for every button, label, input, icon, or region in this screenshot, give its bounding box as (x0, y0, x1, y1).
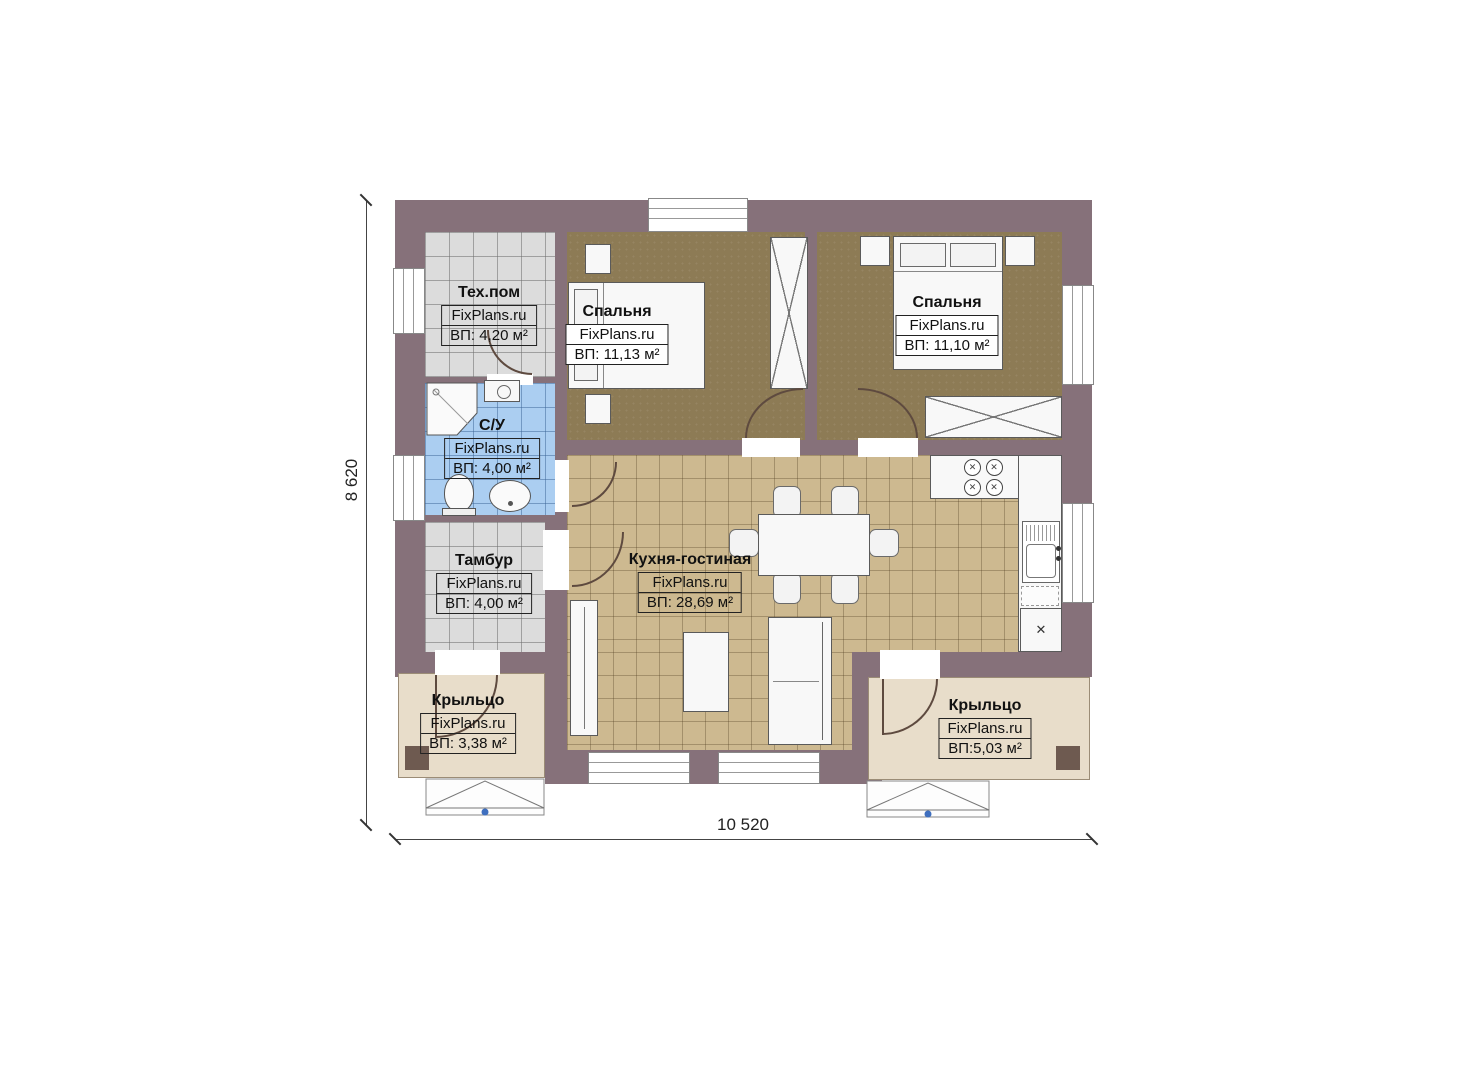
room-label-box: FixPlans.ru ВП: 4,00 м² (444, 438, 540, 479)
room-label-porch-left: Крыльцо FixPlans.ru ВП: 3,38 м² (420, 692, 516, 754)
stove-burner-icon (986, 459, 1003, 476)
porch-column (1056, 746, 1080, 770)
cabinet-x-marker (1020, 608, 1062, 652)
washer-door (497, 385, 511, 399)
wardrobe (770, 237, 808, 389)
window-bottom-2 (718, 752, 820, 784)
faucet-dot (1056, 556, 1061, 561)
tv-stand (570, 600, 598, 736)
sink-drain (508, 501, 513, 506)
sink-basin (1026, 544, 1056, 578)
pillow (950, 243, 996, 267)
nightstand (585, 244, 611, 274)
room-label-bedroom2: Спальня FixPlans.ru ВП: 11,10 м² (895, 294, 998, 356)
window-right-2 (1062, 503, 1094, 603)
coffee-table (683, 632, 729, 712)
room-name: Крыльцо (420, 692, 516, 710)
window-top-1 (648, 198, 748, 232)
room-label-box: FixPlans.ru ВП: 3,38 м² (420, 713, 516, 754)
dimension-height-label: 8 620 (342, 444, 362, 516)
pillow (900, 243, 946, 267)
room-name: Крыльцо (938, 697, 1031, 715)
stove-burner-icon (964, 479, 981, 496)
brand-text: FixPlans.ru (421, 714, 515, 734)
area-text: ВП: 4,00 м² (437, 594, 531, 613)
door-leaf-porch-right (882, 679, 884, 735)
area-text: ВП: 28,69 м² (639, 593, 741, 612)
porch-steps-right (866, 780, 990, 818)
area-text: ВП: 3,38 м² (421, 734, 515, 753)
room-label-bedroom1: Спальня FixPlans.ru ВП: 11,13 м² (565, 303, 668, 365)
room-name: С/У (444, 417, 540, 435)
window-left-2 (393, 455, 425, 521)
area-text: ВП: 11,10 м² (896, 336, 997, 355)
kitchen-sink-icon (1022, 521, 1060, 583)
room-label-tech: Тех.пом FixPlans.ru ВП: 4,20 м² (441, 284, 537, 346)
dimension-line-horizontal (395, 839, 1092, 840)
brand-text: FixPlans.ru (896, 316, 997, 336)
bed-fold-line (894, 271, 1002, 272)
toilet-icon (444, 474, 474, 512)
sofa-cushion-split (773, 681, 819, 682)
room-label-porch-right: Крыльцо FixPlans.ru ВП:5,03 м² (938, 697, 1031, 759)
toilet-tank (442, 508, 476, 516)
chair (773, 572, 801, 604)
tv-line (584, 607, 585, 729)
window-right-1 (1062, 285, 1094, 385)
room-label-bathroom: С/У FixPlans.ru ВП: 4,00 м² (444, 417, 540, 479)
room-name: Тамбур (436, 552, 532, 570)
dimension-line-vertical (366, 200, 367, 825)
dimension-width-label: 10 520 (698, 815, 788, 835)
chair (869, 529, 899, 557)
nightstand (1005, 236, 1035, 266)
window-left-1 (393, 268, 425, 334)
room-label-vestibule: Тамбур FixPlans.ru ВП: 4,00 м² (436, 552, 532, 614)
doorway-porch-left (435, 650, 500, 675)
washing-machine-icon (484, 380, 520, 402)
dining-table (758, 514, 870, 576)
area-text: ВП:5,03 м² (939, 739, 1030, 758)
stove-icon (962, 457, 1006, 497)
faucet-dot (1056, 546, 1061, 551)
room-name: Спальня (565, 303, 668, 321)
porch-steps-left (425, 778, 545, 816)
area-text: ВП: 4,20 м² (442, 326, 536, 345)
doorway-porch-right (880, 650, 940, 679)
room-name: Кухня-гостиная (629, 551, 752, 569)
wardrobe (925, 396, 1062, 438)
brand-text: FixPlans.ru (566, 325, 667, 345)
brand-text: FixPlans.ru (939, 719, 1030, 739)
room-label-box: FixPlans.ru ВП: 11,13 м² (565, 324, 668, 365)
sofa (768, 617, 832, 745)
doorway-bedroom2 (858, 438, 918, 457)
room-name: Спальня (895, 294, 998, 312)
doorway-bedroom1 (742, 438, 800, 457)
room-label-box: FixPlans.ru ВП: 4,00 м² (436, 573, 532, 614)
brand-text: FixPlans.ru (437, 574, 531, 594)
room-label-box: FixPlans.ru ВП: 28,69 м² (638, 572, 742, 613)
floor-plan-canvas: Тех.пом FixPlans.ru ВП: 4,20 м² Спальня … (0, 0, 1474, 1080)
chair (831, 572, 859, 604)
room-label-kitchen-living: Кухня-гостиная FixPlans.ru ВП: 28,69 м² (629, 551, 752, 613)
dishwasher-outline (1021, 586, 1059, 606)
nightstand (585, 394, 611, 424)
room-label-box: FixPlans.ru ВП:5,03 м² (938, 718, 1031, 759)
room-label-box: FixPlans.ru ВП: 11,10 м² (895, 315, 998, 356)
sofa-back-line (822, 622, 823, 740)
room-name: Тех.пом (441, 284, 537, 302)
area-text: ВП: 4,00 м² (445, 459, 539, 478)
sink-drainboard (1026, 525, 1056, 541)
window-bottom-1 (588, 752, 690, 784)
brand-text: FixPlans.ru (445, 439, 539, 459)
sink-icon (489, 480, 531, 512)
nightstand (860, 236, 890, 266)
doorway-vestibule (543, 530, 569, 590)
stove-burner-icon (986, 479, 1003, 496)
stove-burner-icon (964, 459, 981, 476)
area-text: ВП: 11,13 м² (566, 345, 667, 364)
doorway-bathroom (555, 460, 569, 512)
room-label-box: FixPlans.ru ВП: 4,20 м² (441, 305, 537, 346)
brand-text: FixPlans.ru (442, 306, 536, 326)
brand-text: FixPlans.ru (639, 573, 741, 593)
